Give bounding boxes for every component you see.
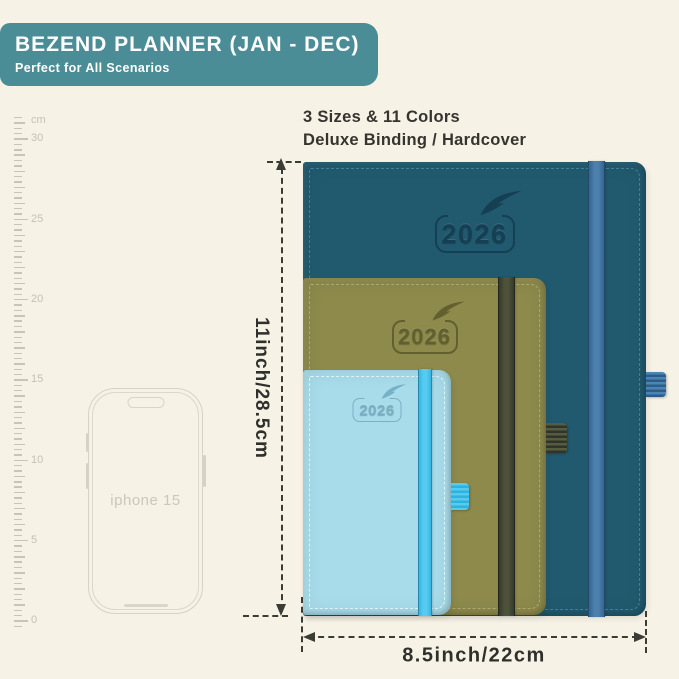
ruler-tick xyxy=(14,561,22,562)
ruler-tick xyxy=(14,465,22,466)
ruler-tick xyxy=(14,470,22,471)
width-dimension-line xyxy=(308,636,638,638)
ruler-number: 20 xyxy=(31,293,43,305)
ruler-tick xyxy=(14,385,22,386)
ruler-tick xyxy=(14,278,22,279)
ruler-tick xyxy=(14,438,22,439)
ruler-tick xyxy=(14,181,22,182)
ruler-tick xyxy=(14,578,22,579)
ruler-tick xyxy=(14,149,22,150)
ruler-number: 0 xyxy=(31,614,37,626)
ruler-tick xyxy=(14,604,25,605)
info-line-binding: Deluxe Binding / Hardcover xyxy=(303,129,526,152)
ruler-tick xyxy=(14,310,22,311)
ruler-tick xyxy=(14,288,22,289)
ruler-tick xyxy=(14,208,22,209)
ruler-tick xyxy=(14,251,25,252)
ruler-tick xyxy=(14,428,25,429)
year-text: 2026 xyxy=(441,219,507,250)
ruler-tick xyxy=(14,460,28,461)
ruler-tick xyxy=(14,267,25,268)
ruler-tick xyxy=(14,486,22,487)
ruler-tick xyxy=(14,122,25,123)
arrow-left-icon xyxy=(303,632,315,642)
year-logo-frame: 2026 xyxy=(392,320,458,354)
ruler-tick xyxy=(14,481,22,482)
ruler-tick xyxy=(14,160,22,161)
feather-icon xyxy=(477,189,525,217)
phone-volume-button-1 xyxy=(86,433,89,452)
ruler-tick xyxy=(14,572,25,573)
year-text: 2026 xyxy=(398,324,451,350)
ruler-tick xyxy=(14,304,22,305)
ruler-tick xyxy=(14,171,25,172)
ruler-tick xyxy=(14,545,22,546)
ruler-tick xyxy=(14,620,28,621)
feather-icon xyxy=(380,383,409,400)
ruler-tick xyxy=(14,358,22,359)
ruler-tick xyxy=(14,503,22,504)
ruler-tick xyxy=(14,390,22,391)
width-dimension-tick-left xyxy=(301,597,303,652)
ruler-tick xyxy=(14,320,22,321)
ruler-tick xyxy=(14,519,22,520)
ruler-tick xyxy=(14,229,22,230)
arrow-up-icon xyxy=(276,158,286,170)
ruler-tick xyxy=(14,272,22,273)
ruler-tick xyxy=(14,492,25,493)
ruler-tick xyxy=(14,374,22,375)
ruler: cm 302520151050 xyxy=(14,112,74,637)
banner-subtitle: Perfect for All Scenarios xyxy=(15,61,378,75)
ruler-tick xyxy=(14,529,22,530)
ruler-tick xyxy=(14,315,25,316)
ruler-tick xyxy=(14,401,22,402)
ruler-tick xyxy=(14,476,25,477)
ruler-tick xyxy=(14,535,22,536)
phone-model-label: iphone 15 xyxy=(89,492,202,509)
ruler-tick xyxy=(14,326,22,327)
ruler-tick xyxy=(14,331,25,332)
year-logo: 2026 xyxy=(353,398,402,422)
ruler-tick xyxy=(14,133,22,134)
ruler-tick xyxy=(14,144,22,145)
elastic-band xyxy=(498,277,515,616)
ruler-number: 30 xyxy=(31,132,43,144)
ruler-tick xyxy=(14,203,25,204)
elastic-band xyxy=(418,369,432,616)
phone-power-button xyxy=(203,455,206,487)
ruler-tick xyxy=(14,363,25,364)
ruler-tick xyxy=(14,433,22,434)
year-logo: 2026 xyxy=(392,320,458,354)
ruler-tick xyxy=(14,283,25,284)
ruler-tick xyxy=(14,369,22,370)
ruler-tick xyxy=(14,556,25,557)
year-text: 2026 xyxy=(359,402,394,419)
height-dimension-label: 11inch/28.5cm xyxy=(250,317,272,459)
ruler-tick xyxy=(14,342,22,343)
pen-loop xyxy=(546,423,567,453)
ruler-number: 5 xyxy=(31,534,37,546)
arrow-right-icon xyxy=(634,632,646,642)
ruler-tick xyxy=(14,610,22,611)
ruler-tick xyxy=(14,395,25,396)
phone-outline: iphone 15 xyxy=(88,388,203,614)
ruler-tick xyxy=(14,154,25,155)
ruler-tick xyxy=(14,449,22,450)
ruler-tick xyxy=(14,246,22,247)
elastic-band xyxy=(588,161,605,617)
ruler-tick xyxy=(14,422,22,423)
ruler-tick xyxy=(14,224,22,225)
ruler-tick xyxy=(14,165,22,166)
ruler-number: 15 xyxy=(31,373,43,385)
ruler-tick xyxy=(14,508,25,509)
height-dimension-line xyxy=(281,168,283,610)
ruler-tick xyxy=(14,540,28,541)
ruler-tick xyxy=(14,256,22,257)
year-logo-frame: 2026 xyxy=(353,398,402,422)
banner: BEZEND PLANNER (JAN - DEC) Perfect for A… xyxy=(0,23,378,86)
ruler-tick xyxy=(14,299,28,300)
ruler-tick xyxy=(14,240,22,241)
phone-home-indicator xyxy=(124,604,168,608)
ruler-tick xyxy=(14,138,28,139)
ruler-tick xyxy=(14,594,22,595)
ruler-tick xyxy=(14,347,25,348)
arrow-down-icon xyxy=(276,604,286,616)
ruler-tick xyxy=(14,219,28,220)
ruler-unit-label: cm xyxy=(31,114,46,126)
ruler-tick xyxy=(14,187,25,188)
dynamic-island-icon xyxy=(127,397,164,408)
ruler-tick xyxy=(14,379,28,380)
ruler-tick xyxy=(14,262,22,263)
ruler-tick xyxy=(14,337,22,338)
ruler-tick xyxy=(14,406,22,407)
banner-title: BEZEND PLANNER (JAN - DEC) xyxy=(15,33,378,57)
ruler-tick xyxy=(14,588,25,589)
phone-volume-button-2 xyxy=(86,463,89,489)
ruler-tick xyxy=(14,235,25,236)
year-logo-frame: 2026 xyxy=(435,215,515,253)
ruler-tick xyxy=(14,454,22,455)
ruler-tick xyxy=(14,524,25,525)
ruler-tick xyxy=(14,197,22,198)
ruler-number: 10 xyxy=(31,454,43,466)
ruler-tick xyxy=(14,567,22,568)
ruler-tick xyxy=(14,353,22,354)
pen-loop xyxy=(451,483,469,510)
ruler-tick xyxy=(14,583,22,584)
ruler-tick xyxy=(14,192,22,193)
ruler-tick xyxy=(14,412,25,413)
year-logo: 2026 xyxy=(435,215,515,253)
planner-small: 2026 xyxy=(303,370,451,615)
ruler-tick xyxy=(14,497,22,498)
ruler-tick xyxy=(14,599,22,600)
ruler-tick xyxy=(14,128,22,129)
ruler-tick xyxy=(14,176,22,177)
ruler-tick xyxy=(14,117,22,118)
ruler-tick xyxy=(14,513,22,514)
ruler-tick xyxy=(14,615,22,616)
info-line-sizes: 3 Sizes & 11 Colors xyxy=(303,106,526,129)
ruler-tick xyxy=(14,294,22,295)
feather-icon xyxy=(430,300,467,322)
ruler-tick xyxy=(14,444,25,445)
width-dimension-label: 8.5inch/22cm xyxy=(402,645,546,668)
pen-loop xyxy=(646,372,666,397)
product-image: BEZEND PLANNER (JAN - DEC) Perfect for A… xyxy=(0,0,679,679)
ruler-number: 25 xyxy=(31,213,43,225)
ruler-tick xyxy=(14,551,22,552)
ruler-tick xyxy=(14,417,22,418)
info-text: 3 Sizes & 11 Colors Deluxe Binding / Har… xyxy=(303,106,526,152)
ruler-tick xyxy=(14,213,22,214)
ruler-tick xyxy=(14,626,22,627)
